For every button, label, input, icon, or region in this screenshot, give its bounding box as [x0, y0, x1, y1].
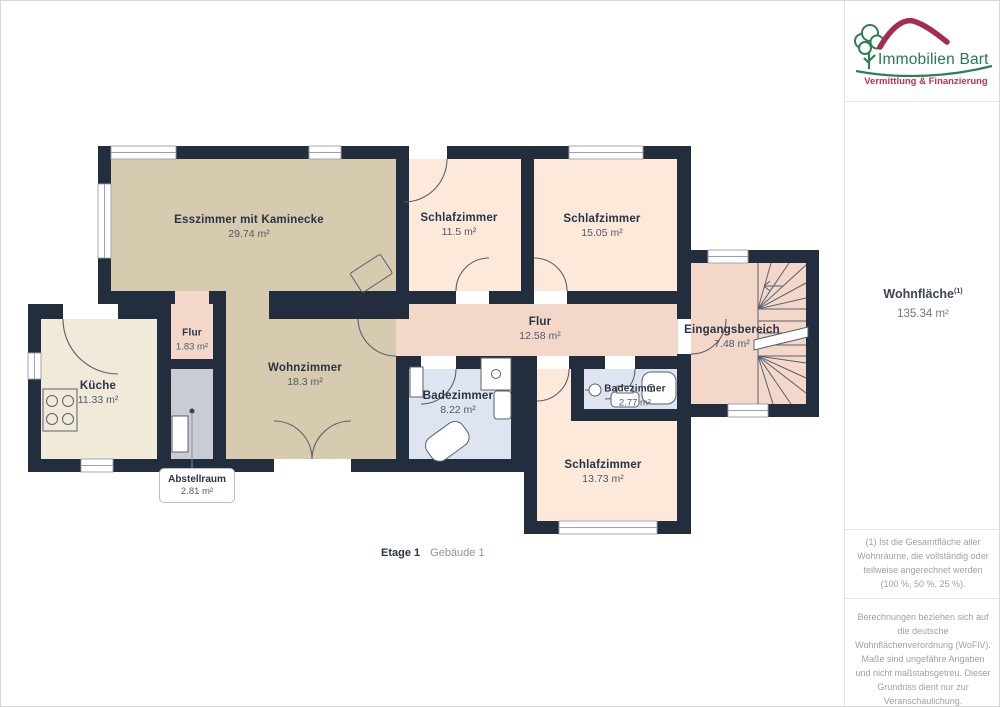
room-area: 12.58 m²	[519, 330, 560, 343]
company-logo: Immobilien Bart Vermittlung & Finanzieru…	[848, 11, 998, 91]
room-area: 15.05 m²	[563, 227, 640, 240]
room-label-abstellraum: Abstellraum 2.81 m²	[159, 468, 235, 503]
sink-icon	[589, 384, 601, 396]
floor-plan-area: Esszimmer mit Kaminecke 29.74 m² Schlafz…	[1, 1, 844, 707]
floor-plan	[1, 1, 844, 707]
room-area: 8.22 m²	[423, 404, 493, 417]
room-name: Esszimmer mit Kaminecke	[174, 213, 324, 227]
room-label-schlafzimmer-1: Schlafzimmer 11.5 m²	[420, 211, 497, 240]
room-name: Flur	[176, 327, 208, 340]
floor-label: Etage 1	[381, 547, 420, 559]
footnote-1: (1) Ist die Gesamtfläche aller Wohnräume…	[845, 529, 1000, 598]
room-area: 1.83 m²	[176, 341, 208, 353]
logo-title: Immobilien Bart	[878, 51, 989, 68]
room-area: 2.81 m²	[162, 486, 232, 498]
room-name: Schlafzimmer	[563, 212, 640, 226]
room-area: 2.77 m²	[604, 397, 665, 409]
living-area-value: 135.34 m²	[845, 308, 1000, 320]
room-area: 13.73 m²	[564, 473, 641, 486]
room-name: Schlafzimmer	[420, 211, 497, 225]
room-label-flur: Flur 12.58 m²	[519, 315, 560, 344]
living-area-summary: Wohnfläche(1) 135.34 m²	[845, 287, 1000, 320]
footnote-ref: (1)	[954, 288, 963, 295]
room-label-schlafzimmer-2: Schlafzimmer 15.05 m²	[563, 212, 640, 241]
room-name: Eingangsbereich	[684, 323, 780, 337]
logo-subtitle: Vermittlung & Finanzierung	[864, 76, 988, 87]
room-name: Abstellraum	[162, 473, 232, 486]
floor-caption: Etage 1Gebäude 1	[381, 547, 485, 559]
room-label-schlafzimmer-3: Schlafzimmer 13.73 m²	[564, 458, 641, 487]
room-name: Wohnzimmer	[268, 361, 342, 375]
room-label-badezimmer-2: Badezimmer 2.77 m²	[604, 383, 665, 408]
room-name: Badezimmer	[604, 383, 665, 396]
roof-icon	[880, 21, 947, 47]
room-name: Badezimmer	[423, 389, 493, 403]
room-name: Schlafzimmer	[564, 458, 641, 472]
living-area-label: Wohnfläche(1)	[845, 287, 1000, 301]
room-label-kueche: Küche 11.33 m²	[78, 379, 119, 408]
room-label-wohnzimmer: Wohnzimmer 18.3 m²	[268, 361, 342, 390]
room-label-flur-klein: Flur 1.83 m²	[176, 327, 208, 352]
room-name: Flur	[519, 315, 560, 329]
room-area: 29.74 m²	[174, 228, 324, 241]
room-name: Küche	[78, 379, 119, 393]
footnote-2: Berechnungen beziehen sich auf die deuts…	[845, 598, 1000, 707]
tree-icon	[855, 25, 884, 54]
building-label: Gebäude 1	[430, 547, 484, 559]
room-label-badezimmer-1: Badezimmer 8.22 m²	[423, 389, 493, 418]
side-panel: Immobilien Bart Vermittlung & Finanzieru…	[844, 1, 1000, 707]
page: Esszimmer mit Kaminecke 29.74 m² Schlafz…	[0, 0, 1000, 707]
room-area: 11.33 m²	[78, 394, 119, 407]
room-area: 18.3 m²	[268, 376, 342, 389]
room-area: 7.48 m²	[684, 338, 780, 351]
tree-trunk	[864, 53, 875, 69]
logo-section: Immobilien Bart Vermittlung & Finanzieru…	[845, 1, 1000, 102]
washbasin-icon	[494, 391, 511, 419]
room-area: 11.5 m²	[420, 226, 497, 239]
disclaimer-text: Berechnungen beziehen sich auf die deuts…	[854, 611, 992, 707]
room-label-esszimmer: Esszimmer mit Kaminecke 29.74 m²	[174, 213, 324, 242]
room-label-eingangsbereich: Eingangsbereich 7.48 m²	[684, 323, 780, 352]
